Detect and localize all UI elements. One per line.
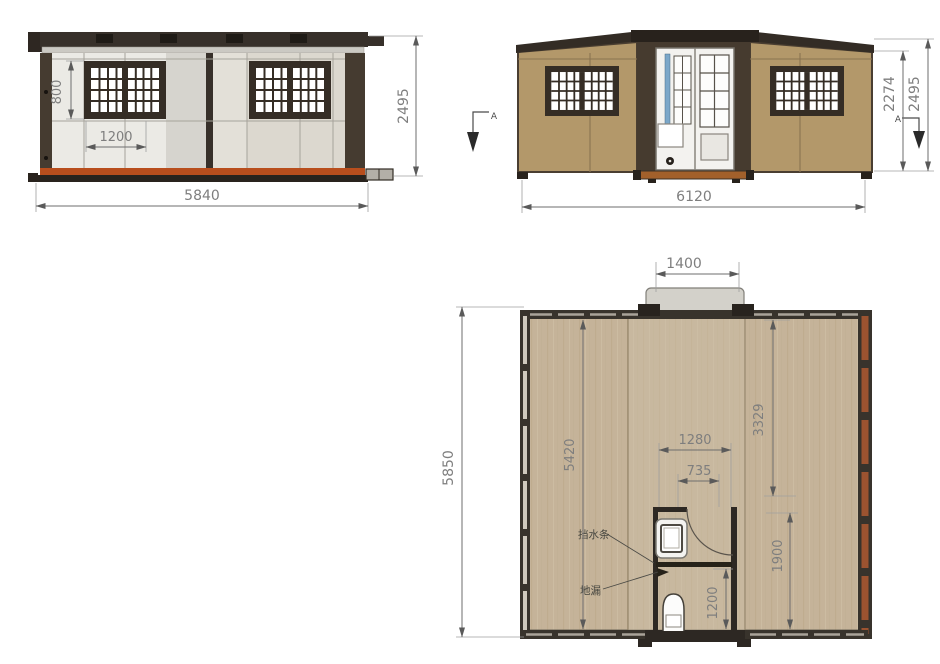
dim-text-800: 800 [50,80,65,105]
porch-clamp-right [732,304,754,316]
dim-text-1200: 1200 [99,130,132,145]
door-knob-center [669,160,672,163]
dim-entry-width-1400: 1400 [656,256,739,292]
bathroom-wall-right [731,507,737,633]
dim-text-5420: 5420 [563,438,578,471]
core-roof-cap [631,30,759,42]
section-marker-left: A [467,112,498,152]
dim-text-5840: 5840 [184,188,220,204]
dim-overall-depth-5850: 5850 [441,307,524,637]
roof-band [40,32,368,47]
bathroom-exterior-wall [645,630,745,642]
dim-text-5850: 5850 [441,450,457,486]
bottom-foot-left [638,639,652,647]
dim-text-1280: 1280 [678,433,711,448]
deck-end-left [633,170,641,180]
dim-text-3329: 3329 [752,403,767,436]
dim-overall-width-6120: 6120 [522,180,865,213]
hinge-dot [44,90,48,94]
technical-drawing-canvas: 800 1200 5840 2495 [0,0,940,664]
door-left-lites [674,56,691,124]
section-arrow-right [913,131,925,149]
dim-text-735: 735 [687,464,712,479]
door-bottom-panel [701,134,728,160]
porch-clamp-left [638,304,660,316]
center-post [206,53,213,169]
bottom-foot-right [737,639,751,647]
grid-window-left [84,61,166,119]
container-house-drawing: 800 1200 5840 2495 [0,0,940,664]
roof-left-end-cap [28,32,42,52]
grid-window-right-wing [770,66,844,116]
grid-window-left-wing [545,66,619,116]
deck-end-right [746,170,754,180]
utility-box [658,124,683,147]
floor-plan-view: 挡水条 地漏 1400 5850 5420 3329 1280 [441,256,872,647]
dim-text-6120: 6120 [676,189,712,205]
corner-post-left [40,53,52,169]
section-letter-a-left: A [491,112,498,122]
base-orange-strip [40,168,365,175]
hinge-dot [44,156,48,160]
corner-post-right [345,53,365,169]
grid-window-right [249,61,331,119]
roof-right-hook [368,36,384,46]
door-blue-strip [665,54,670,132]
section-marker-right: A [895,115,925,149]
front-elevation-view: 800 1200 5840 2495 [28,32,423,212]
dim-overall-width-5840: 5840 [36,183,368,212]
dim-text-2495-front: 2495 [396,88,412,124]
wall-panel-right-light [213,53,247,169]
bottom-rail [36,175,368,182]
entry-deck [639,171,748,179]
eave-strip [42,47,364,53]
dim-text-1400: 1400 [666,256,702,272]
side-elevation-view: A A 6120 2274 2495 [467,30,934,213]
dim-wall-height-2274: 2274 [874,51,909,171]
door-right-lites [700,55,729,127]
section-arrow-left [467,132,479,152]
dim-text-2274: 2274 [882,76,898,112]
entry-porch [646,288,744,312]
wall-panel-shaded [166,53,206,169]
dim-overall-height-2495-front: 2495 [369,36,423,176]
left-foot [28,173,38,182]
toilet-fixture-base [666,615,681,627]
water-barrier-strip [656,562,732,567]
section-letter-a-right: A [895,115,902,125]
dim-text-1900: 1900 [771,539,786,572]
dim-text-2495-side: 2495 [907,76,923,112]
dim-text-1200-plan: 1200 [706,586,721,619]
bathroom-wall-top [653,507,687,512]
